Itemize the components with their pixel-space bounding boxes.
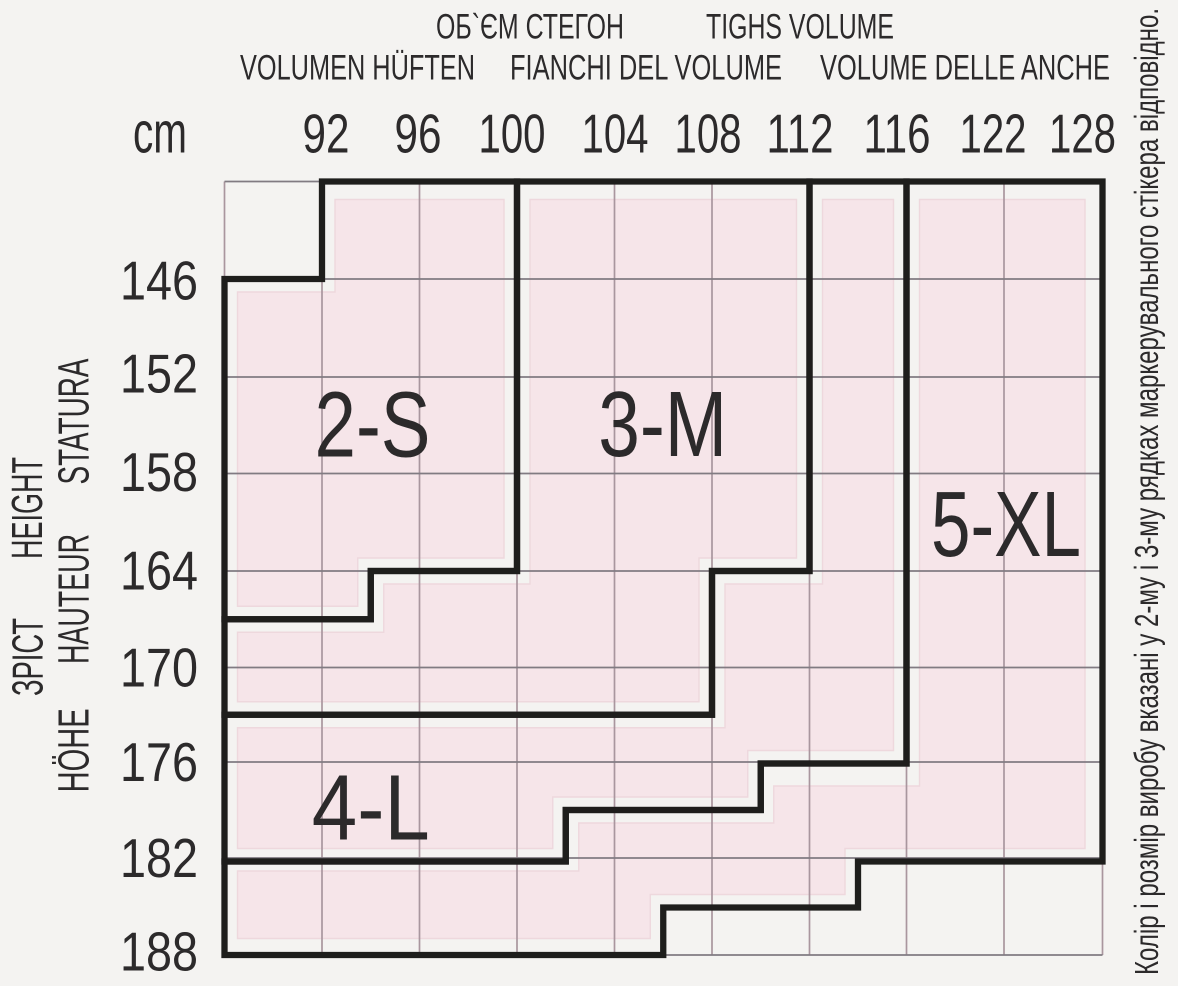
svg-text:Колір і розмір виробу вказані: Колір і розмір виробу вказані у 2-му і 3…: [1128, 8, 1165, 975]
svg-text:112: 112: [767, 103, 834, 165]
svg-text:100: 100: [479, 103, 546, 165]
svg-text:FIANCHI DEL VOLUME: FIANCHI DEL VOLUME: [510, 49, 782, 88]
svg-text:2-S: 2-S: [315, 372, 431, 476]
svg-text:4-L: 4-L: [312, 756, 430, 860]
svg-text:152: 152: [120, 342, 198, 404]
svg-text:116: 116: [864, 103, 931, 165]
svg-text:176: 176: [120, 731, 198, 793]
svg-text:STATURA: STATURA: [51, 359, 99, 485]
svg-text:158: 158: [120, 441, 198, 503]
svg-text:122: 122: [960, 103, 1027, 165]
svg-text:ЗРІСТ: ЗРІСТ: [5, 618, 53, 696]
svg-text:146: 146: [120, 249, 198, 311]
svg-text:188: 188: [120, 920, 198, 982]
svg-text:cm: cm: [133, 101, 187, 166]
svg-text:104: 104: [582, 103, 649, 165]
svg-text:182: 182: [120, 827, 198, 889]
svg-text:VOLUME DELLE ANCHE: VOLUME DELLE ANCHE: [820, 49, 1110, 88]
svg-text:3-M: 3-M: [598, 372, 727, 476]
svg-text:164: 164: [120, 539, 198, 601]
svg-text:108: 108: [675, 103, 742, 165]
svg-text:128: 128: [1049, 103, 1116, 165]
svg-text:5-XL: 5-XL: [931, 472, 1081, 576]
svg-text:HEIGHT: HEIGHT: [4, 457, 52, 559]
svg-text:96: 96: [395, 103, 442, 165]
svg-text:VOLUMEN HÜFTEN: VOLUMEN HÜFTEN: [240, 49, 475, 88]
svg-text:TIGHS VOLUME: TIGHS VOLUME: [706, 8, 894, 47]
svg-text:92: 92: [303, 103, 350, 165]
svg-text:HÖHE: HÖHE: [51, 708, 99, 792]
svg-text:ОБ`ЄМ СТЕГОН: ОБ`ЄМ СТЕГОН: [436, 8, 624, 47]
svg-text:170: 170: [120, 636, 198, 698]
svg-text:HAUTEUR: HAUTEUR: [51, 534, 99, 664]
